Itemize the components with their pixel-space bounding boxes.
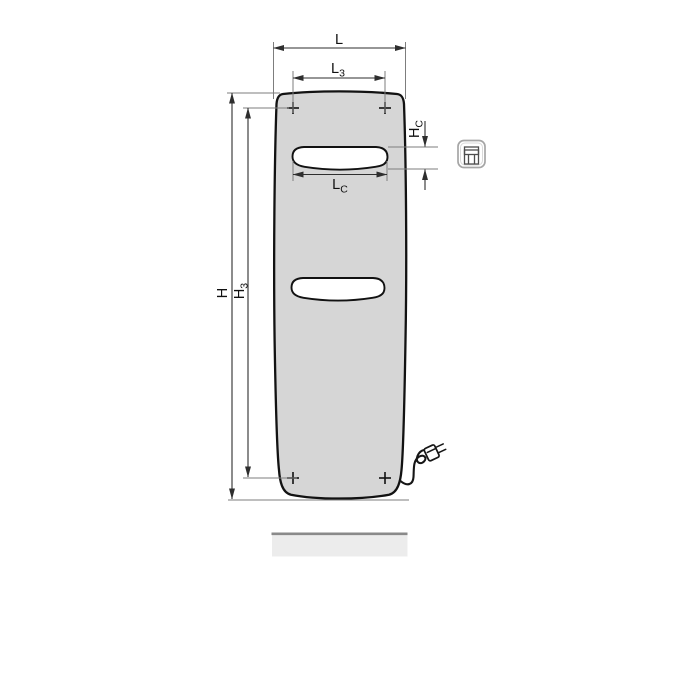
diagram-canvas: L L3 LC H H3 HC	[0, 0, 700, 700]
top-cutout-slot	[293, 147, 388, 170]
dim-label-L3-sub: 3	[339, 68, 345, 80]
dim-label-L-main: L	[335, 32, 343, 48]
dim-label-L: L	[335, 32, 343, 48]
plug-pin-bottom	[438, 449, 446, 453]
electric-connection-icon	[458, 141, 485, 168]
dim-label-H3-main: H	[232, 289, 248, 299]
dim-label-Hc-main: H	[407, 128, 423, 138]
dim-label-Hc-sub: C	[414, 120, 426, 128]
dim-label-Lc-sub: C	[340, 184, 348, 196]
power-cord	[401, 450, 429, 484]
dim-label-L3-main: L	[331, 61, 339, 77]
dim-label-L3: L3	[331, 61, 345, 80]
floor-bar	[272, 535, 408, 557]
dim-label-H: H	[215, 288, 231, 298]
plug-pin-top	[436, 444, 444, 448]
dim-label-H3: H3	[232, 283, 251, 299]
dim-label-Lc-main: L	[332, 177, 340, 193]
dim-label-H3-sub: 3	[239, 283, 251, 289]
radiator-dimension-drawing: L L3 LC H H3 HC	[0, 0, 700, 700]
floor-strip	[272, 534, 408, 557]
dim-label-Hc: HC	[407, 120, 426, 138]
middle-cutout-slot	[292, 278, 385, 301]
dim-label-H-main: H	[215, 288, 231, 298]
power-plug	[424, 441, 448, 462]
